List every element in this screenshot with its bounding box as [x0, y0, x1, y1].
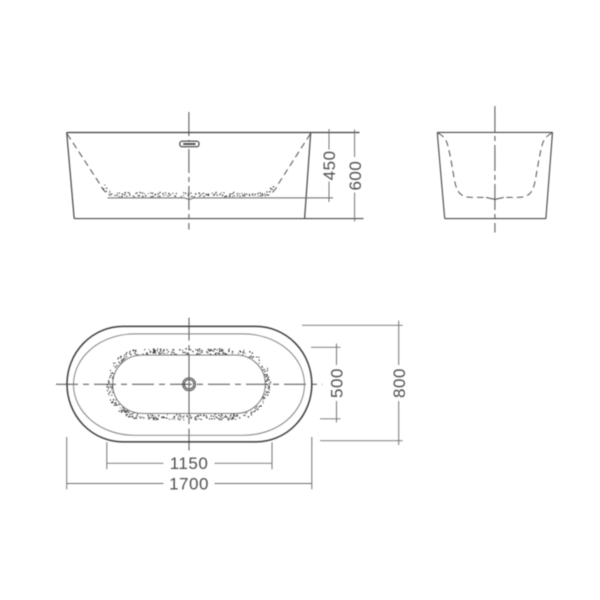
svg-text:800: 800: [390, 368, 409, 398]
svg-text:600: 600: [346, 161, 365, 191]
svg-text:1150: 1150: [170, 454, 209, 473]
svg-text:1700: 1700: [169, 474, 209, 493]
svg-text:500: 500: [328, 368, 347, 398]
svg-text:450: 450: [320, 150, 339, 180]
